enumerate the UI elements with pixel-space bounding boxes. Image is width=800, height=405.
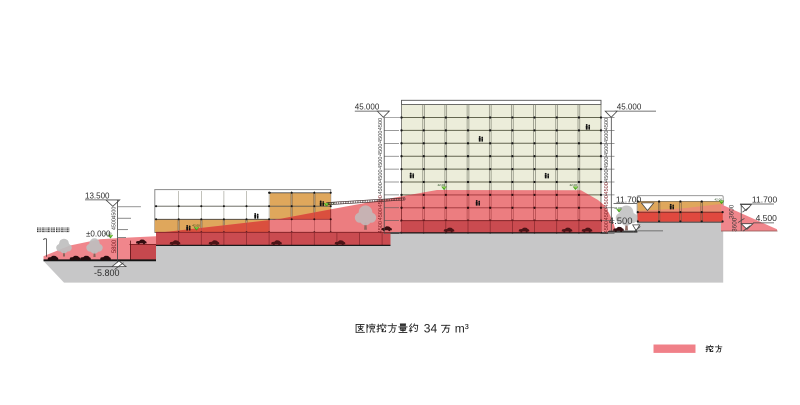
svg-text:4500: 4500: [604, 195, 610, 207]
svg-text:4.500: 4.500: [756, 213, 778, 223]
svg-text:42.00: 42.00: [328, 201, 336, 205]
svg-text:4500: 4500: [378, 156, 384, 168]
svg-text:34: 34: [424, 322, 438, 336]
svg-text:4500: 4500: [604, 169, 610, 181]
svg-text:4500: 4500: [378, 221, 384, 233]
svg-text:m³: m³: [455, 322, 469, 336]
svg-text:42.00: 42.00: [192, 224, 200, 228]
svg-text:42.00: 42.00: [614, 206, 622, 210]
svg-text:4500: 4500: [604, 144, 610, 156]
svg-text:42.00: 42.00: [715, 197, 723, 201]
svg-text:4500: 4500: [604, 156, 610, 168]
svg-text:42.00: 42.00: [438, 183, 446, 187]
svg-text:4500: 4500: [604, 131, 610, 143]
svg-text:5800: 5800: [112, 239, 118, 253]
svg-text:4500: 4500: [378, 131, 384, 143]
svg-text:4.500: 4.500: [609, 216, 633, 227]
svg-text:±0.000: ±0.000: [86, 229, 111, 238]
svg-text:42.00: 42.00: [570, 183, 578, 187]
svg-text:45.000: 45.000: [617, 102, 642, 111]
svg-text:-5.800: -5.800: [94, 268, 120, 278]
svg-text:4500: 4500: [378, 195, 384, 207]
svg-text:4500: 4500: [378, 182, 384, 194]
svg-text:4500: 4500: [604, 182, 610, 194]
svg-text:4500: 4500: [111, 218, 117, 230]
svg-text:13.500: 13.500: [85, 192, 110, 201]
svg-text:3600: 3600: [732, 217, 739, 232]
svg-text:4500: 4500: [378, 144, 384, 156]
svg-text:4500: 4500: [604, 118, 610, 130]
svg-text:4500: 4500: [378, 118, 384, 130]
svg-text:45.000: 45.000: [355, 102, 380, 111]
svg-text:3600: 3600: [728, 204, 735, 219]
svg-text:11.700: 11.700: [752, 194, 778, 204]
svg-text:4500: 4500: [111, 207, 117, 219]
svg-text:4500: 4500: [378, 208, 384, 220]
svg-text:4500: 4500: [378, 169, 384, 181]
